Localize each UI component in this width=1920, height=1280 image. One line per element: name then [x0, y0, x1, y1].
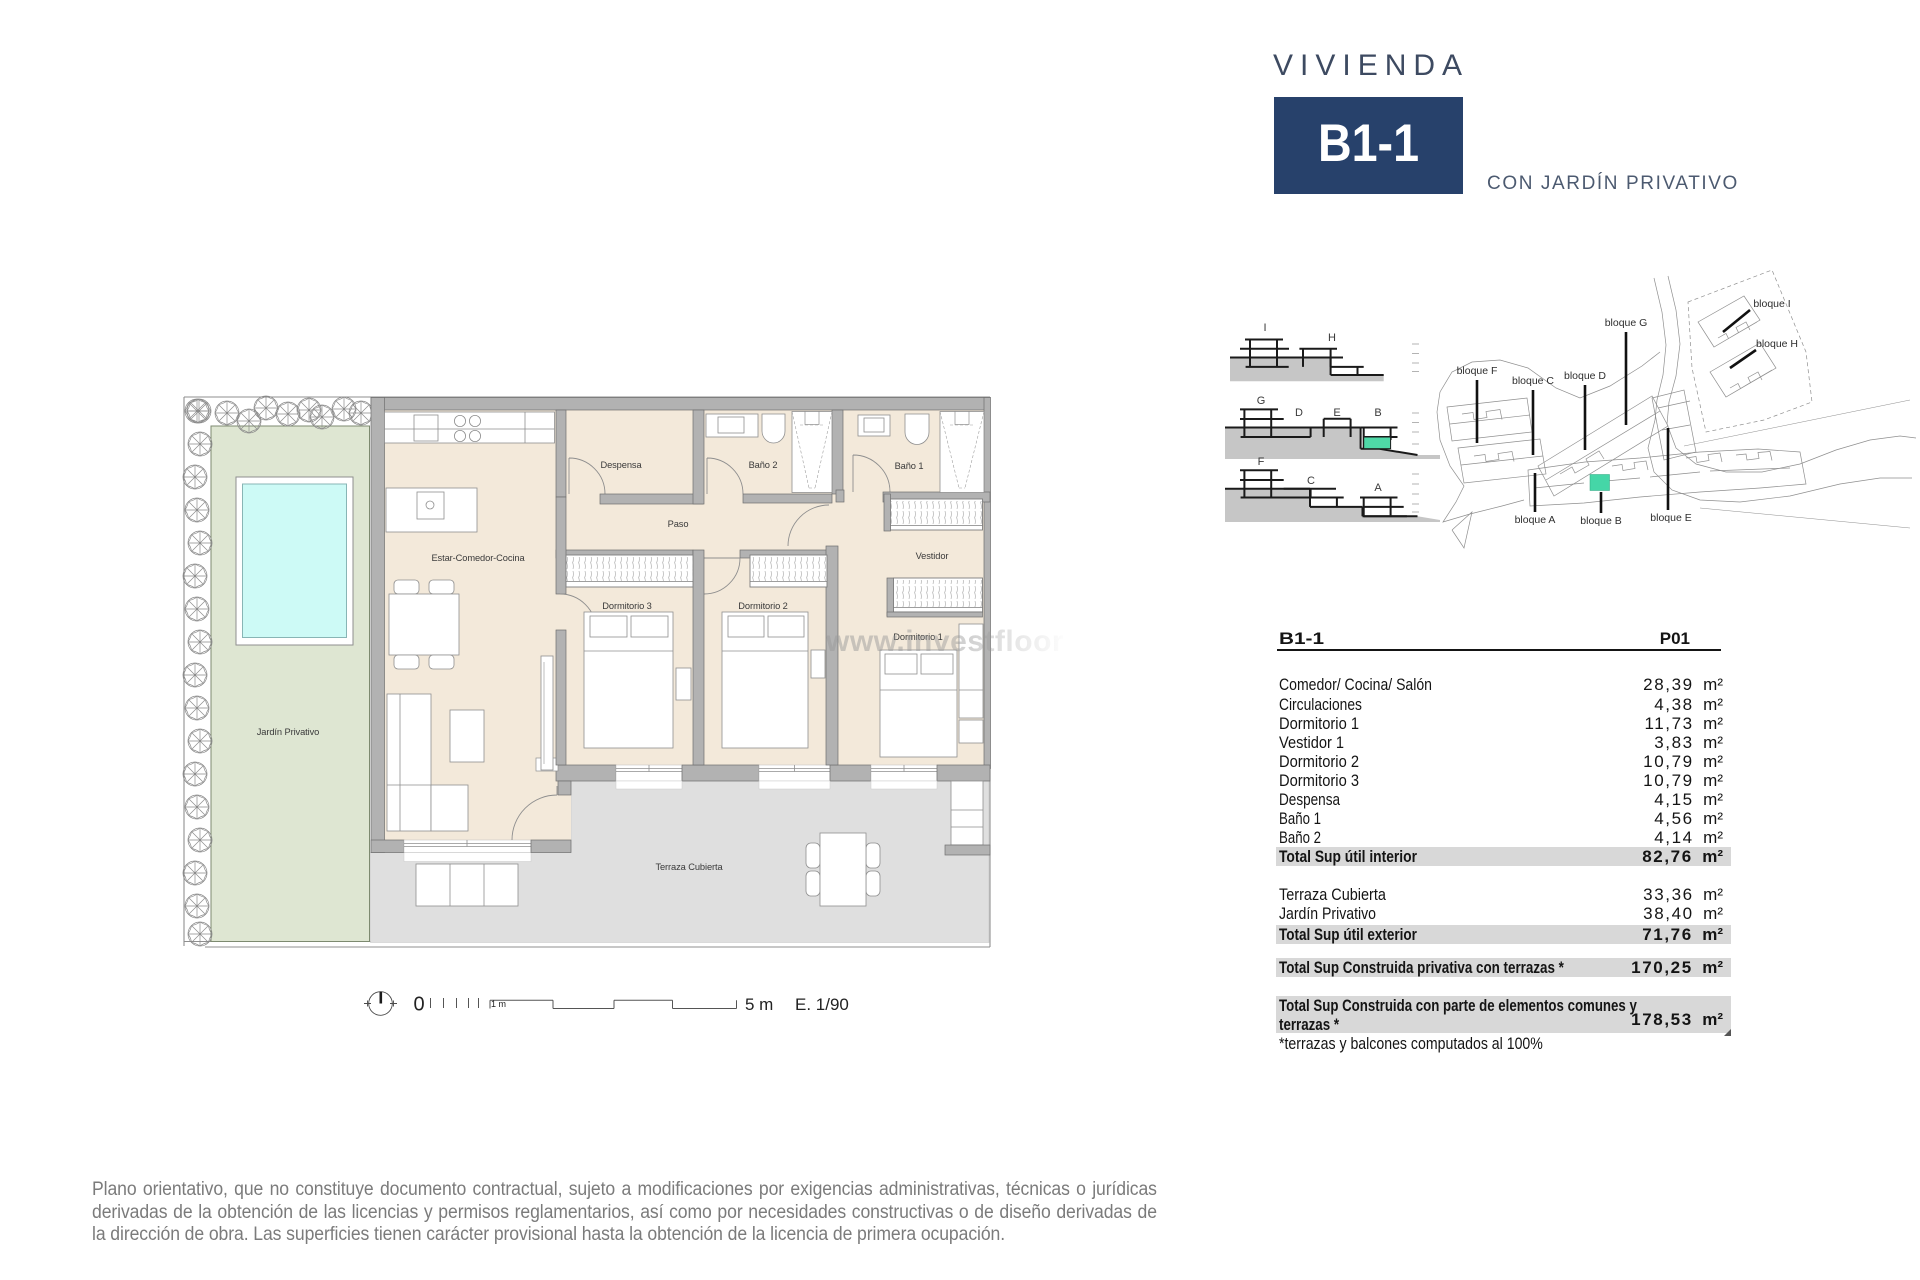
svg-text:1 m: 1 m	[491, 999, 506, 1009]
svg-text:E: E	[1333, 407, 1340, 419]
svg-text:Baño 2: Baño 2	[749, 460, 778, 470]
svg-text:Dormitorio 2: Dormitorio 2	[738, 601, 787, 611]
svg-text:D: D	[1295, 407, 1303, 419]
svg-text:E. 1/90: E. 1/90	[795, 995, 849, 1014]
svg-text:A: A	[1374, 482, 1382, 494]
svg-text:Estar-Comedor-Cocina: Estar-Comedor-Cocina	[431, 553, 525, 563]
svg-text:bloque D: bloque D	[1564, 370, 1606, 382]
svg-text:B: B	[1374, 407, 1381, 419]
svg-text:bloque E: bloque E	[1650, 512, 1691, 524]
svg-text:Baño 1: Baño 1	[895, 461, 924, 471]
svg-text:bloque A: bloque A	[1515, 514, 1556, 526]
svg-text:Terraza Cubierta: Terraza Cubierta	[655, 862, 723, 872]
svg-text:H: H	[1328, 332, 1336, 344]
svg-text:Despensa: Despensa	[600, 460, 642, 470]
svg-text:bloque C: bloque C	[1512, 375, 1554, 387]
svg-text:F: F	[1258, 456, 1265, 468]
svg-text:5 m: 5 m	[745, 995, 773, 1014]
svg-text:I: I	[1263, 322, 1266, 334]
svg-text:www.investfloor: www.investfloor	[825, 625, 1064, 658]
svg-text:0: 0	[414, 994, 425, 1016]
svg-text:bloque F: bloque F	[1457, 365, 1498, 377]
svg-text:bloque B: bloque B	[1580, 515, 1621, 527]
svg-text:Paso: Paso	[668, 519, 689, 529]
svg-text:Jardín Privativo: Jardín Privativo	[257, 727, 319, 737]
svg-text:Dormitorio 3: Dormitorio 3	[602, 601, 651, 611]
svg-text:bloque G: bloque G	[1605, 317, 1648, 329]
svg-text:bloque H: bloque H	[1756, 338, 1798, 350]
svg-text:G: G	[1257, 395, 1266, 407]
svg-text:bloque I: bloque I	[1753, 298, 1790, 310]
svg-text:Vestidor: Vestidor	[916, 551, 949, 561]
svg-text:C: C	[1307, 475, 1315, 487]
